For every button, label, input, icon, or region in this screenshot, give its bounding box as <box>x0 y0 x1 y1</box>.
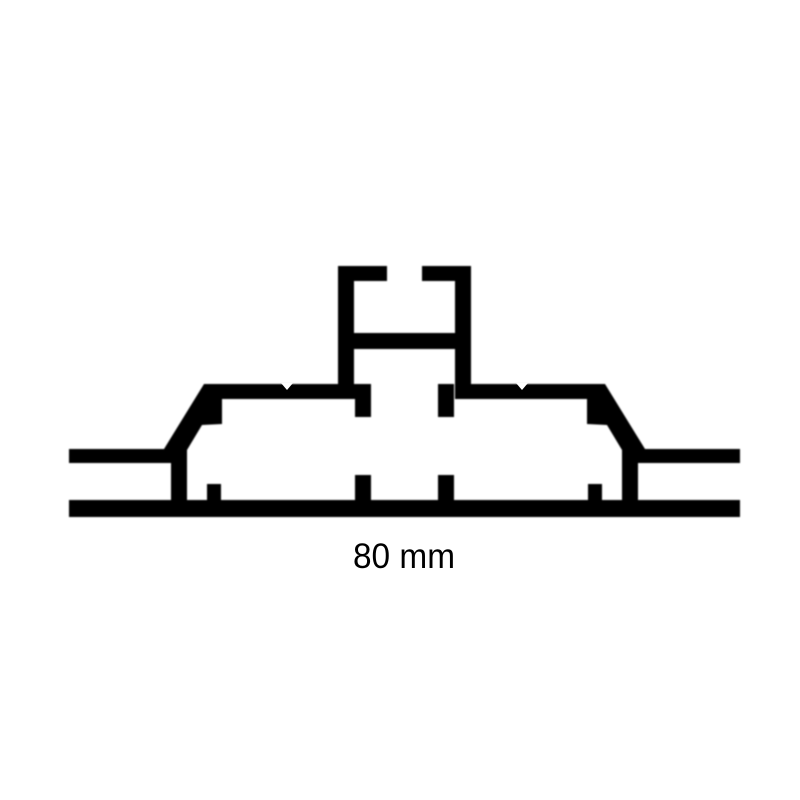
svg-text:80 mm: 80 mm <box>353 537 455 576</box>
